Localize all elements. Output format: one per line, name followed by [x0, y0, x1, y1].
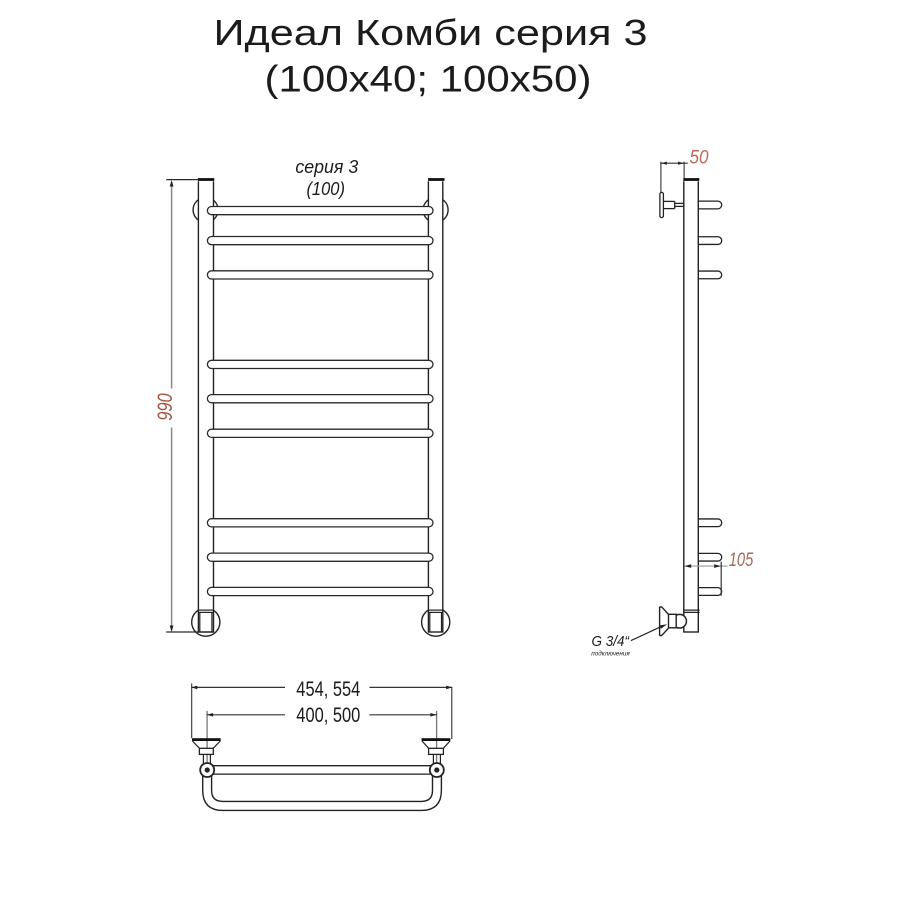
svg-text:105: 105 — [729, 550, 754, 571]
svg-text:Идеал Комби серия 3: Идеал Комби серия 3 — [214, 12, 648, 53]
svg-text:454, 554: 454, 554 — [296, 678, 360, 701]
svg-text:подключения: подключения — [591, 650, 630, 658]
svg-text:990: 990 — [154, 393, 177, 421]
svg-text:400, 500: 400, 500 — [296, 704, 360, 727]
svg-text:50: 50 — [690, 148, 709, 169]
svg-text:серия 3: серия 3 — [295, 157, 358, 177]
svg-text:(100): (100) — [306, 179, 345, 199]
svg-text:G 3/4“: G 3/4“ — [592, 634, 631, 650]
svg-text:(100х40; 100х50): (100х40; 100х50) — [265, 57, 592, 99]
